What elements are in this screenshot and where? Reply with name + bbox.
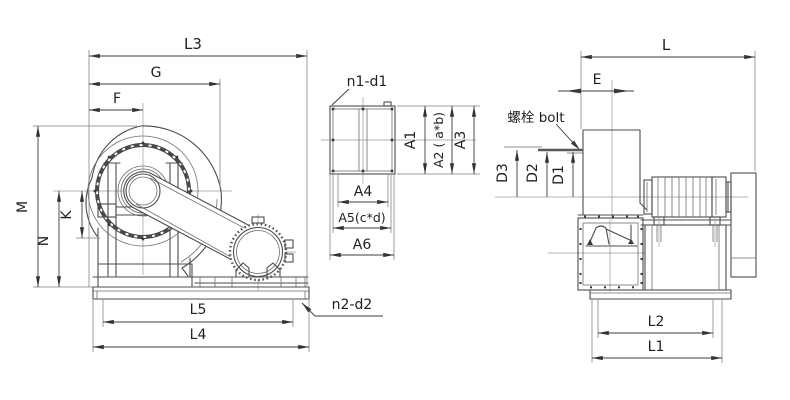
outlet-flange-view: n1-d1 A1 A2 ( a*b) A3 A4 A5(c*d) A6 <box>321 74 480 260</box>
dim-label-a2: A2 ( a*b) <box>431 112 446 168</box>
callout-label-bolt: 螺栓 bolt <box>507 110 564 126</box>
dim-label-l3: L3 <box>184 35 202 53</box>
end-view-base <box>590 290 731 299</box>
callout-label-n1-d1: n1-d1 <box>347 74 388 90</box>
dim-label-d1: D1 <box>551 165 567 185</box>
dim-label-a1: A1 <box>403 131 419 149</box>
dim-label-m: M <box>15 201 31 213</box>
motor-tab-lower <box>285 254 293 262</box>
dim-label-n: N <box>36 236 52 246</box>
end-view: 螺栓 bolt <box>495 36 756 363</box>
inlet-duct <box>583 130 647 215</box>
dim-label-f: F <box>113 91 121 107</box>
scroll-side-plate <box>728 173 756 277</box>
impeller-cutaway <box>586 225 637 246</box>
flange-dimensions: A1 A2 ( a*b) A3 A4 A5(c*d) A6 <box>330 106 480 260</box>
dim-label-l4: L4 <box>190 327 207 343</box>
callout-label-n2-d2: n2-d2 <box>332 297 373 313</box>
dim-label-e: E <box>593 72 602 88</box>
scroll-housing-end <box>578 215 643 290</box>
motor-pedestal <box>641 220 731 290</box>
callout-n1-d1: n1-d1 <box>332 74 387 105</box>
base-plate <box>93 287 309 299</box>
drawing-svg: L3 G F M N K L5 L4 <box>0 0 790 400</box>
dim-label-a6: A6 <box>353 237 372 253</box>
side-view-dimensions: L3 G F M N K L5 L4 <box>15 35 383 352</box>
base-assembly <box>93 277 309 299</box>
dim-label-l5: L5 <box>190 302 207 318</box>
callout-n2-d2: n2-d2 <box>302 297 383 316</box>
dim-label-l1: L1 <box>648 339 665 355</box>
dim-label-l: L <box>662 36 671 54</box>
outlet-flange-square <box>330 102 395 174</box>
dim-label-d3: D3 <box>495 163 511 183</box>
dim-label-a5: A5(c*d) <box>338 210 385 225</box>
dim-label-g: G <box>151 65 162 81</box>
dim-label-l2: L2 <box>648 314 665 330</box>
dim-label-d2: D2 <box>525 163 541 183</box>
side-view: L3 G F M N K L5 L4 <box>15 35 383 352</box>
callout-bolt: 螺栓 bolt <box>507 110 580 150</box>
inlet-flange <box>504 147 583 153</box>
dim-label-a4: A4 <box>354 184 373 200</box>
fan-dimension-drawing: L3 G F M N K L5 L4 <box>0 0 790 400</box>
motor-tab-upper <box>285 240 293 248</box>
housing-bolt-dots <box>580 216 643 289</box>
dim-label-a3: A3 <box>453 131 469 149</box>
dim-label-k: K <box>59 210 75 220</box>
